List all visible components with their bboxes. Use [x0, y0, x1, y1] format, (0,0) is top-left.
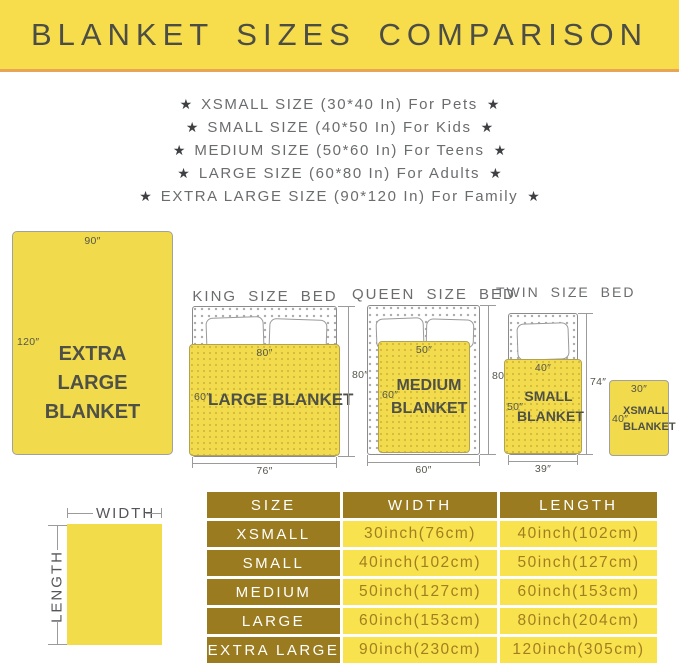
dim-line: [68, 513, 93, 514]
star-icon: ★: [527, 188, 540, 204]
star-icon: ★: [489, 165, 502, 181]
xsmall-blanket-name: XSMALL BLANKET: [623, 404, 667, 436]
twin-bed-height-label: 74″: [590, 376, 606, 388]
xl-blanket-name: EXTRA LARGE BLANKET: [23, 340, 162, 427]
king-blanket: 80″ 60″ LARGE BLANKET: [189, 344, 340, 456]
king-bed-width-label: 76″: [192, 465, 337, 477]
table-row-length: 60inch(153cm): [500, 579, 657, 605]
king-blanket-name: LARGE BLANKET: [208, 388, 337, 413]
dim-tick: [338, 306, 355, 307]
xl-width-label: 90″: [13, 235, 172, 247]
dim-line: [586, 313, 587, 455]
star-icon: ★: [177, 165, 190, 181]
table-row-size: EXTRA LARGE: [207, 637, 340, 663]
table-row-length: 50inch(127cm): [500, 550, 657, 576]
list-item: ★MEDIUM SIZE (50*60 In) For Teens★: [0, 139, 679, 162]
king-bed-height-label: 80″: [352, 369, 368, 381]
size-table: SIZE WIDTH LENGTH XSMALL 30inch(76cm) 40…: [207, 492, 657, 663]
table-row-size: LARGE: [207, 608, 340, 634]
table-row-width: 60inch(153cm): [343, 608, 497, 634]
dim-tick: [338, 456, 355, 457]
table-row-size: XSMALL: [207, 521, 340, 547]
xsmall-blanket: 30″ 40″ XSMALL BLANKET: [609, 380, 669, 456]
king-bed-title: KING SIZE BED: [185, 288, 345, 305]
king-blanket-width-label: 80″: [190, 347, 339, 359]
table-row-width: 30inch(76cm): [343, 521, 497, 547]
table-header-width: WIDTH: [343, 492, 497, 518]
list-item: ★EXTRA LARGE SIZE (90*120 In) For Family…: [0, 185, 679, 208]
table-header-length: LENGTH: [500, 492, 657, 518]
star-icon: ★: [139, 188, 152, 204]
dim-line: [348, 306, 349, 457]
size-list-text: XSMALL SIZE (30*40 In) For Pets: [201, 96, 478, 113]
star-icon: ★: [173, 142, 186, 158]
star-icon: ★: [487, 96, 500, 112]
infographic-canvas: BLANKET SIZES COMPARISON ★XSMALL SIZE (3…: [0, 0, 679, 667]
star-icon: ★: [494, 142, 507, 158]
header-banner: BLANKET SIZES COMPARISON: [0, 0, 679, 72]
queen-bed-title: QUEEN SIZE BED: [352, 286, 497, 303]
star-icon: ★: [180, 96, 193, 112]
size-list-text: LARGE SIZE (60*80 In) For Adults: [199, 165, 480, 182]
dim-tick: [161, 508, 162, 518]
table-row-length: 80inch(204cm): [500, 608, 657, 634]
dim-line: [488, 305, 489, 455]
star-icon: ★: [186, 119, 199, 135]
table-row-width: 90inch(230cm): [343, 637, 497, 663]
table-header-size: SIZE: [207, 492, 340, 518]
dim-line: [367, 462, 480, 463]
twin-blanket-width-label: 40″: [505, 362, 581, 374]
dim-tick: [48, 644, 67, 645]
twin-bed-title: TWIN SIZE BED: [496, 284, 596, 300]
measure-blanket-swatch: [67, 524, 162, 645]
size-list: ★XSMALL SIZE (30*40 In) For Pets★ ★SMALL…: [0, 93, 679, 208]
list-item: ★LARGE SIZE (60*80 In) For Adults★: [0, 162, 679, 185]
xsmall-width-label: 30″: [610, 383, 668, 395]
size-list-text: SMALL SIZE (40*50 In) For Kids: [207, 119, 471, 136]
dim-line: [146, 513, 161, 514]
pillow: [516, 322, 569, 361]
list-item: ★XSMALL SIZE (30*40 In) For Pets★: [0, 93, 679, 116]
star-icon: ★: [481, 119, 494, 135]
table-row-width: 50inch(127cm): [343, 579, 497, 605]
table-row-length: 120inch(305cm): [500, 637, 657, 663]
size-list-text: EXTRA LARGE SIZE (90*120 In) For Family: [161, 188, 519, 205]
queen-blanket-name: MEDIUM BLANKET: [391, 374, 467, 420]
queen-blanket-width-label: 50″: [379, 344, 469, 356]
list-item: ★SMALL SIZE (40*50 In) For Kids★: [0, 116, 679, 139]
size-list-text: MEDIUM SIZE (50*60 In) For Teens: [194, 142, 484, 159]
table-row-length: 40inch(102cm): [500, 521, 657, 547]
table-row-size: MEDIUM: [207, 579, 340, 605]
queen-bed-width-label: 60″: [367, 464, 480, 476]
twin-blanket: 40″ 50″ SMALL BLANKET: [504, 359, 582, 454]
twin-bed-width-label: 39″: [508, 463, 578, 475]
dim-line: [508, 461, 578, 462]
dim-line: [192, 463, 337, 464]
table-row-width: 40inch(102cm): [343, 550, 497, 576]
xl-blanket: 90″ 120″ EXTRA LARGE BLANKET: [12, 231, 173, 455]
table-row-size: SMALL: [207, 550, 340, 576]
queen-blanket: 50″ 60″ MEDIUM BLANKET: [378, 341, 470, 453]
dim-line: [57, 621, 58, 644]
page-title: BLANKET SIZES COMPARISON: [31, 17, 648, 53]
twin-blanket-name: SMALL BLANKET: [517, 386, 580, 427]
